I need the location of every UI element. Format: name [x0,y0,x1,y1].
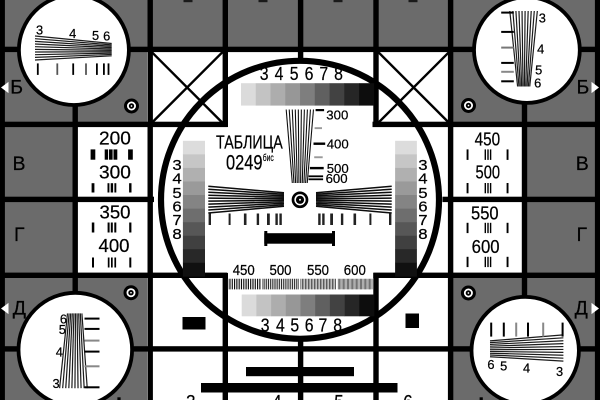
svg-text:7: 7 [319,63,328,84]
svg-text:6: 6 [487,357,494,372]
svg-text:400: 400 [99,235,130,256]
svg-text:6: 6 [403,392,412,400]
svg-text:Г: Г [14,224,25,246]
svg-text:500: 500 [270,263,292,279]
svg-text:Д: Д [13,298,26,320]
svg-text:6: 6 [305,63,314,84]
svg-text:550: 550 [307,263,329,279]
svg-text:600: 600 [326,171,348,186]
svg-text:3: 3 [261,314,270,335]
svg-text:350: 350 [100,201,131,222]
svg-text:600: 600 [472,236,500,257]
svg-text:6: 6 [305,314,314,335]
svg-text:4: 4 [275,63,284,84]
svg-text:4: 4 [272,392,282,400]
svg-text:5: 5 [500,358,507,373]
svg-text:Б: Б [577,76,590,98]
svg-text:6: 6 [103,29,110,44]
svg-text:3: 3 [36,22,43,37]
svg-text:300: 300 [99,161,131,182]
svg-text:500: 500 [476,161,501,182]
svg-text:4: 4 [537,42,544,57]
svg-text:8: 8 [418,226,427,243]
svg-text:300: 300 [326,107,348,122]
svg-text:5: 5 [59,322,66,337]
svg-text:В: В [13,153,26,175]
svg-text:3: 3 [260,63,269,84]
svg-text:600: 600 [344,263,366,279]
svg-text:Г: Г [577,224,588,246]
svg-text:8: 8 [334,63,343,84]
svg-text:4: 4 [56,345,63,360]
svg-text:3: 3 [186,392,195,400]
svg-text:8: 8 [333,314,342,335]
svg-text:450: 450 [233,263,255,279]
svg-text:4: 4 [276,314,285,335]
svg-text:5: 5 [290,314,299,335]
svg-text:8: 8 [172,226,181,243]
svg-text:бис: бис [263,152,274,164]
svg-text:550: 550 [471,202,499,223]
svg-text:3: 3 [539,11,546,26]
svg-text:200: 200 [99,128,131,149]
svg-text:3: 3 [53,376,60,391]
svg-text:0249: 0249 [226,151,263,174]
svg-text:3: 3 [556,364,563,379]
svg-text:В: В [576,153,589,175]
svg-text:4: 4 [69,26,76,41]
svg-text:400: 400 [327,137,349,152]
svg-text:5: 5 [92,28,99,43]
svg-text:4: 4 [523,360,530,375]
svg-text:5: 5 [290,63,299,84]
svg-text:6: 6 [534,75,541,90]
svg-text:450: 450 [475,129,501,150]
svg-text:ТАБЛИЦА: ТАБЛИЦА [216,131,283,152]
svg-text:5: 5 [334,392,344,400]
svg-text:7: 7 [319,314,328,335]
svg-text:Д: Д [575,298,588,320]
svg-text:Б: Б [10,76,23,98]
